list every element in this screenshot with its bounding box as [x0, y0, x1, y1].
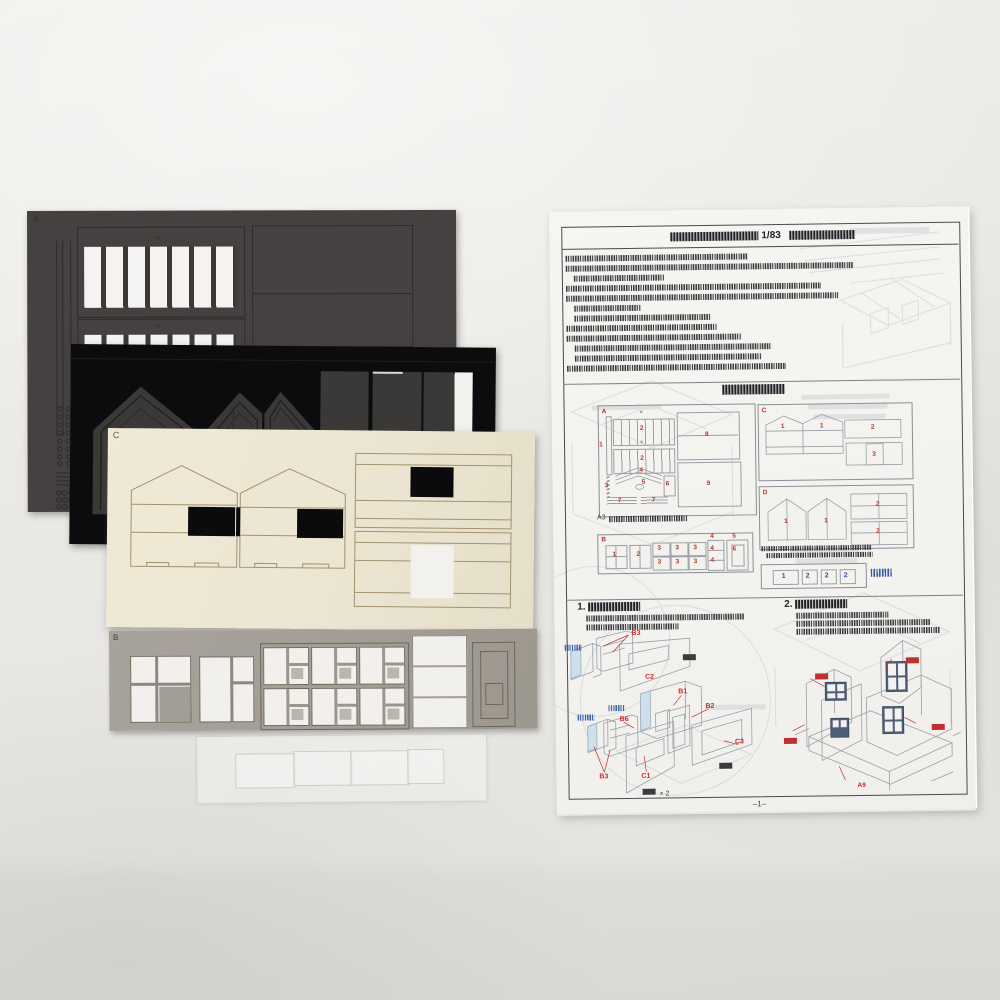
svg-text:C2: C2 [645, 674, 654, 681]
svg-text:B6: B6 [620, 716, 629, 723]
svg-text:B3: B3 [599, 773, 608, 780]
svg-text:B2: B2 [705, 703, 714, 710]
svg-text:B1: B1 [678, 688, 687, 695]
svg-text:C1: C1 [641, 773, 650, 780]
svg-text:B3: B3 [631, 630, 640, 637]
svg-text:C3: C3 [735, 738, 744, 745]
svg-text:× 2: × 2 [660, 790, 670, 797]
